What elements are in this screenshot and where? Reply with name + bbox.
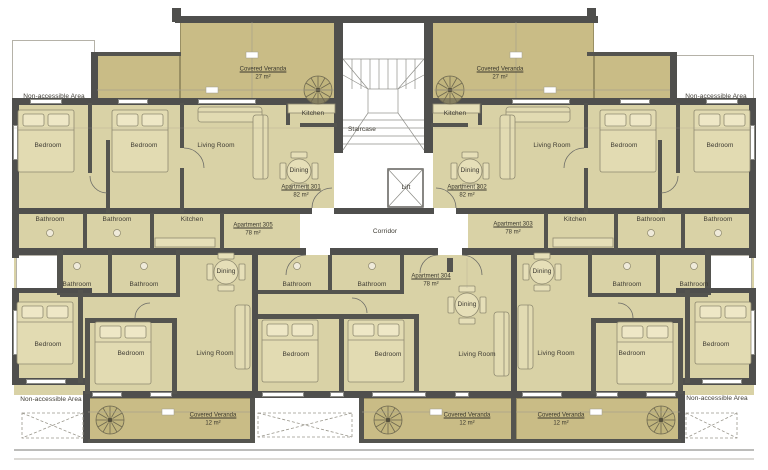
room-label-bedroom: Bedroom [34, 342, 61, 349]
wall-segment [12, 98, 19, 258]
wall-segment [587, 52, 670, 56]
ground-line [14, 450, 754, 459]
window-opening [13, 310, 18, 355]
window-opening [596, 392, 618, 397]
partition-wall [658, 140, 662, 213]
window-opening [150, 392, 172, 397]
veranda-area-text: 27 m² [255, 74, 270, 82]
window-opening [372, 392, 426, 397]
apartment-area-text: 82 m² [293, 192, 308, 200]
wall-segment [359, 398, 364, 443]
room-label-bedroom: Bedroom [374, 352, 401, 359]
apartment-name: Apartment 303 [493, 222, 532, 230]
wall-segment [98, 52, 181, 56]
room-label-bedroom: Bedroom [117, 351, 144, 358]
apartment-area-text: 82 m² [459, 192, 474, 200]
room-label-bedroom: Bedroom [610, 143, 637, 150]
window-opening [118, 99, 148, 104]
window-opening [330, 392, 344, 397]
partition-wall [258, 314, 418, 319]
partition-wall [300, 123, 337, 127]
partition-wall [85, 318, 90, 394]
veranda-label-top-left: Covered Veranda 27 m² [240, 67, 287, 82]
lift-label: Lift [401, 185, 410, 192]
wall-segment [678, 391, 685, 443]
veranda-name: Covered Veranda [538, 413, 585, 421]
apartment-label-303: Apartment 303 78 m² [493, 222, 532, 237]
wall-segment [175, 16, 341, 23]
room-label-living-room: Living Room [537, 351, 574, 358]
veranda-area [97, 55, 180, 103]
non-accessible-zone [12, 40, 95, 100]
veranda-area-text: 12 m² [553, 420, 568, 428]
floor-plan: Non-accessible Area Non-accessible Area … [0, 0, 768, 470]
veranda-label-top-right: Covered Veranda 27 m² [477, 67, 524, 82]
wall-segment [749, 98, 756, 258]
veranda-area [180, 20, 337, 103]
wall-segment [88, 439, 253, 443]
partition-wall [176, 250, 180, 293]
wall-segment [334, 16, 433, 23]
partition-wall [83, 213, 87, 250]
wall-segment [516, 439, 681, 443]
window-opening [620, 99, 650, 104]
room-label-bedroom: Bedroom [706, 143, 733, 150]
room-label-bathroom: Bathroom [704, 217, 733, 224]
room-label-living-room: Living Room [196, 351, 233, 358]
room-label-bathroom: Bathroom [103, 217, 132, 224]
partition-wall [85, 318, 177, 323]
room-label-kitchen: Kitchen [302, 111, 324, 118]
room-label-living-room: Living Room [533, 143, 570, 150]
partition-wall [447, 258, 453, 272]
room-label-bedroom: Bedroom [618, 351, 645, 358]
door-opening [312, 208, 334, 214]
room-label-bedroom: Bedroom [282, 352, 309, 359]
partition-wall [588, 293, 708, 297]
wall-segment [670, 52, 677, 103]
window-opening [262, 392, 304, 397]
wall-segment [12, 208, 337, 214]
wall-segment [587, 8, 596, 22]
apartment-name: Apartment 304 [411, 274, 450, 282]
window-opening [92, 392, 122, 397]
room-label-bedroom: Bedroom [34, 143, 61, 150]
door-opening [438, 248, 462, 255]
room-label-kitchen: Kitchen [444, 111, 466, 118]
staircase-label: Staircase [348, 127, 376, 134]
partition-wall [676, 103, 680, 173]
veranda-area-text: 12 m² [205, 420, 220, 428]
apartment-area-text: 78 m² [505, 229, 520, 237]
window-opening [750, 125, 755, 160]
room-label-dining: Dining [460, 168, 479, 175]
room-label-living-room: Living Room [458, 352, 495, 359]
wall-segment [424, 16, 433, 153]
wall-segment [427, 16, 598, 23]
apartment-name: Apartment 301 [281, 185, 320, 193]
room-label-living-room: Living Room [197, 143, 234, 150]
partition-wall [414, 314, 419, 394]
partition-wall [656, 250, 660, 293]
veranda-name: Covered Veranda [190, 413, 237, 421]
partition-wall [172, 318, 177, 394]
wall-segment [511, 255, 517, 398]
building-recess [16, 255, 60, 290]
non-accessible-label-top-right: Non-accessible Area [685, 94, 747, 101]
apartment-name: Apartment 302 [447, 185, 486, 193]
veranda-area [594, 55, 672, 103]
veranda-name: Covered Veranda [444, 413, 491, 421]
room-label-dining: Dining [532, 269, 551, 276]
wall-segment [511, 398, 516, 443]
room-label-dining: Dining [289, 168, 308, 175]
wall-segment [83, 391, 90, 443]
room-label-kitchen: Kitchen [564, 217, 586, 224]
building-recess [708, 255, 752, 290]
veranda-name: Covered Veranda [477, 67, 524, 75]
room-label-bathroom: Bathroom [283, 282, 312, 289]
room-label-bathroom: Bathroom [63, 282, 92, 289]
apartment-label-304: Apartment 304 78 m² [411, 274, 450, 289]
window-opening [198, 99, 256, 104]
room-label-bedroom: Bedroom [130, 143, 157, 150]
door-opening [306, 248, 330, 255]
window-opening [750, 310, 755, 355]
partition-wall [400, 255, 404, 293]
room-label-bedroom: Bedroom [702, 342, 729, 349]
apartment-label-305: Apartment 305 78 m² [233, 223, 272, 238]
partition-wall [478, 103, 482, 125]
room-label-dining: Dining [457, 302, 476, 309]
apartment-label-301: Apartment 301 82 m² [281, 185, 320, 200]
window-opening [26, 379, 66, 384]
wall-segment [12, 248, 756, 255]
veranda-label-bottom-left: Covered Veranda 12 m² [190, 413, 237, 428]
partition-wall [588, 250, 592, 293]
apartment-label-302: Apartment 302 82 m² [447, 185, 486, 200]
wall-segment [252, 255, 258, 398]
veranda-area-text: 12 m² [459, 420, 474, 428]
partition-wall [220, 213, 224, 250]
non-accessible-label-bottom-right: Non-accessible Area [686, 396, 748, 403]
veranda-label-bottom-right: Covered Veranda 12 m² [538, 413, 585, 428]
partition-wall [678, 318, 683, 394]
partition-wall [431, 123, 468, 127]
partition-wall [180, 103, 184, 148]
veranda-area [431, 20, 594, 103]
partition-wall [339, 314, 344, 394]
partition-wall [591, 318, 683, 323]
partition-wall [584, 168, 588, 213]
partition-wall [88, 103, 92, 173]
room-label-dining: Dining [216, 269, 235, 276]
partition-wall [685, 290, 690, 383]
partition-wall [681, 213, 685, 250]
partition-wall [584, 103, 588, 148]
room-label-bathroom: Bathroom [358, 282, 387, 289]
veranda-name: Covered Veranda [240, 67, 287, 75]
partition-wall [591, 318, 596, 394]
room-label-kitchen: Kitchen [181, 217, 203, 224]
partition-wall [150, 213, 154, 250]
window-opening [512, 99, 570, 104]
veranda-area [362, 398, 514, 443]
corridor-label: Corridor [373, 229, 397, 236]
room-label-bathroom: Bathroom [36, 217, 65, 224]
partition-wall [258, 290, 404, 294]
wall-segment [91, 52, 98, 103]
room-label-bathroom: Bathroom [130, 282, 159, 289]
partition-wall [544, 213, 548, 250]
wall-segment [250, 398, 255, 443]
partition-wall [78, 290, 83, 383]
window-opening [522, 392, 562, 397]
partition-wall [106, 140, 110, 213]
partition-wall [328, 255, 332, 293]
non-accessible-label-top-left: Non-accessible Area [23, 94, 85, 101]
non-accessible-label-bottom-left: Non-accessible Area [20, 397, 82, 404]
veranda-area-text: 27 m² [492, 74, 507, 82]
partition-wall [286, 103, 290, 125]
door-opening [434, 208, 456, 214]
window-opening [702, 379, 742, 384]
window-opening [455, 392, 469, 397]
apartment-area-text: 78 m² [423, 281, 438, 289]
wall-segment [172, 8, 181, 22]
veranda-label-bottom-center: Covered Veranda 12 m² [444, 413, 491, 428]
wall-segment [337, 208, 431, 214]
partition-wall [108, 250, 112, 293]
wall-segment [362, 439, 514, 443]
window-opening [646, 392, 676, 397]
partition-wall [180, 168, 184, 213]
window-opening [13, 125, 18, 160]
apartment-area-text: 78 m² [245, 230, 260, 238]
partition-wall [614, 213, 618, 250]
wall-segment [334, 16, 343, 153]
room-label-bathroom: Bathroom [613, 282, 642, 289]
room-label-bathroom: Bathroom [680, 282, 709, 289]
room-label-bathroom: Bathroom [637, 217, 666, 224]
room-fill [252, 250, 517, 398]
apartment-name: Apartment 305 [233, 223, 272, 231]
wall-segment [431, 208, 754, 214]
